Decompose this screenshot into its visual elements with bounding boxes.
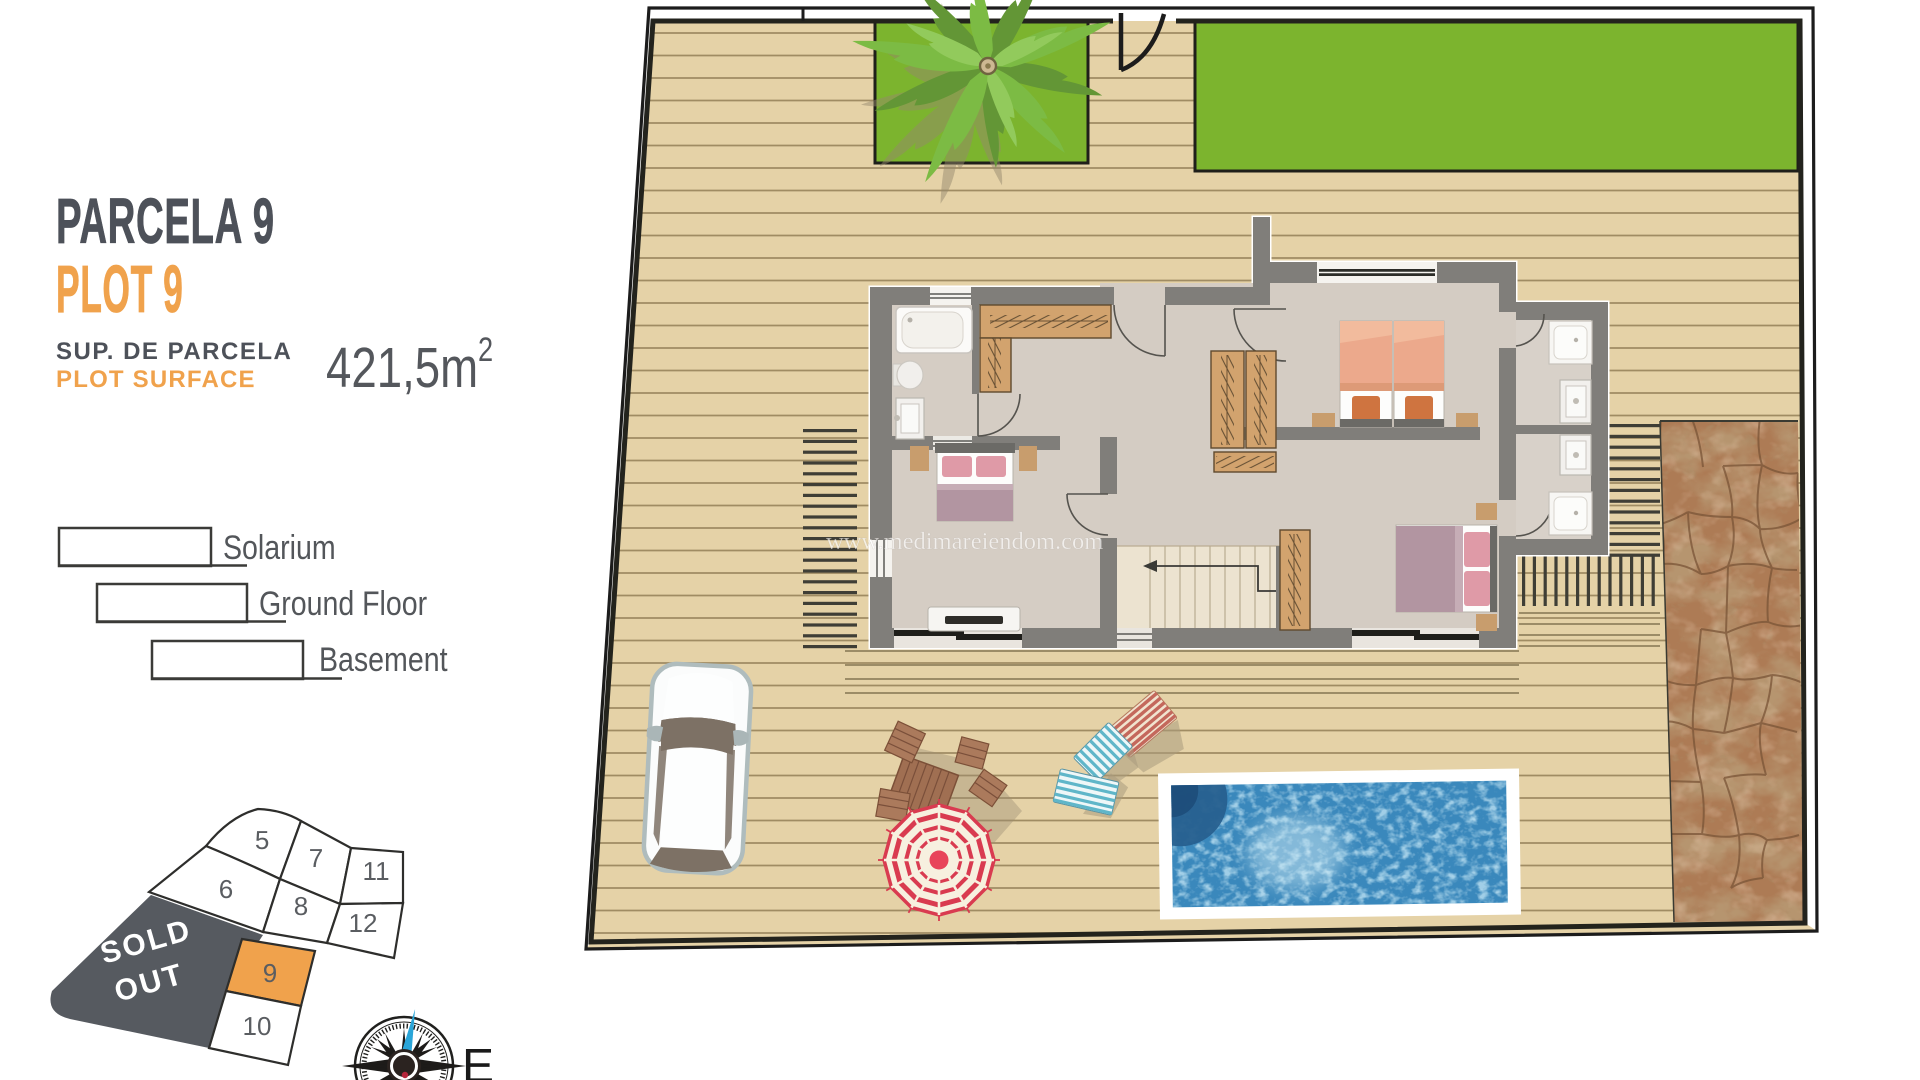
svg-text:PLOT SURFACE: PLOT SURFACE (56, 366, 256, 393)
svg-text:421,5m: 421,5m (326, 335, 478, 399)
svg-text:2: 2 (478, 330, 493, 369)
svg-text:8: 8 (294, 891, 308, 921)
svg-text:www.medimareiendom.com: www.medimareiendom.com (826, 528, 1103, 555)
svg-text:Basement: Basement (319, 641, 448, 679)
svg-text:5: 5 (255, 825, 269, 855)
svg-text:10: 10 (242, 1011, 271, 1041)
svg-text:9: 9 (263, 958, 277, 988)
svg-text:SUP. DE PARCELA: SUP. DE PARCELA (56, 338, 292, 365)
svg-text:E: E (462, 1040, 494, 1080)
svg-text:12: 12 (349, 908, 378, 938)
svg-text:PARCELA 9: PARCELA 9 (56, 186, 275, 258)
svg-text:6: 6 (219, 874, 233, 904)
svg-text:Solarium: Solarium (223, 529, 336, 567)
svg-text:11: 11 (363, 856, 390, 886)
svg-text:7: 7 (309, 843, 323, 873)
svg-text:PLOT 9: PLOT 9 (56, 252, 183, 327)
svg-text:Ground Floor: Ground Floor (259, 585, 427, 623)
